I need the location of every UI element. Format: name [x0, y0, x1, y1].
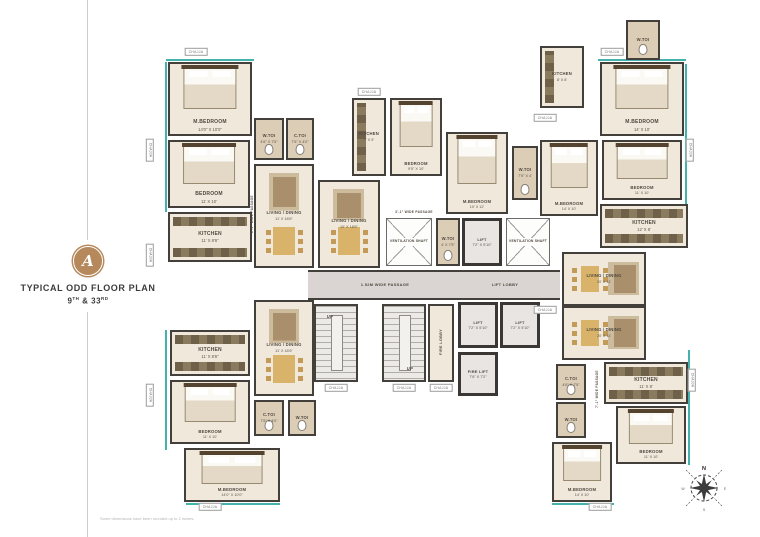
- chajja-label: CHAJJA: [393, 384, 416, 392]
- room-living-dining: LIVING / DINING11' X 18'6": [254, 164, 314, 268]
- room-bedroom: BEDROOM11' X 10': [170, 380, 250, 444]
- wc-furniture-icon: [521, 184, 530, 195]
- chajja-label: CHAJJA: [534, 306, 557, 314]
- room-m-bedroom: M.BEDROOM14'0" X 10'0": [184, 448, 280, 502]
- room-w-toi: W.TOI4'6" X 7'5": [254, 118, 284, 160]
- bed-furniture-icon: [183, 146, 235, 184]
- compass-south-label: S: [703, 508, 706, 512]
- room-ventilation-shaft: VENTILATION SHAFT: [386, 218, 432, 266]
- bed-furniture-icon: [457, 138, 496, 184]
- balcony-edge-line: [165, 330, 167, 450]
- chajja-label: CHAJJA: [146, 384, 154, 407]
- chajja-label: CHAJJA: [688, 369, 696, 392]
- balcony-edge-line: [165, 62, 167, 212]
- room-kitchen: KITCHEN8' X 8': [540, 46, 584, 108]
- floor-plan-drawing: M.BEDROOM14'0" X 10'0"BEDROOM11' X 10'W.…: [0, 0, 760, 537]
- compass-west-label: W: [681, 487, 685, 491]
- chajja-label: CHAJJA: [589, 503, 612, 511]
- plan-label-1-52m-wide-passage: 1.52M WIDE PASSAGE: [340, 282, 430, 287]
- bed-furniture-icon: [617, 146, 668, 179]
- plan-label-fire-lobby: FIRE LOBBY: [439, 297, 443, 387]
- chajja-label: CHAJJA: [185, 48, 208, 56]
- chajja-label: CHAJJA: [146, 139, 154, 162]
- room-living-dining: LIVING / DINING20' X 11': [562, 306, 646, 360]
- bed-furniture-icon: [551, 146, 588, 188]
- room-c-toi: C.TOI7'5" X 4'0": [286, 118, 314, 160]
- bed-furniture-icon: [185, 386, 236, 422]
- room-w-toi: W.TOI: [626, 20, 660, 60]
- chajja-label: CHAJJA: [534, 114, 557, 122]
- chajja-label: CHAJJA: [146, 244, 154, 267]
- chajja-label: CHAJJA: [199, 503, 222, 511]
- plan-label-7-1-wide-passage: 7'-1" WIDE PASSAGE: [595, 344, 599, 434]
- room-m-bedroom: M.BEDROOM14'0" X 10'0": [168, 62, 252, 136]
- wc-furniture-icon: [567, 422, 576, 433]
- balcony-edge-line: [166, 59, 254, 61]
- room-bedroom: BEDROOM11' X 10': [602, 140, 682, 200]
- room-m-bedroom: M.BEDROOM14' X 10': [552, 442, 612, 502]
- room-w-toi: W.TOI4' X 7'5": [436, 218, 460, 266]
- chajja-label: CHAJJA: [686, 139, 694, 162]
- room-living-dining: LIVING / DINING20' X 11': [562, 252, 646, 306]
- plan-label-2-1-wide-passage: 2'-1" WIDE PASSAGE: [250, 169, 254, 259]
- wc-furniture-icon: [265, 144, 274, 155]
- compass-north-label: N: [702, 466, 706, 472]
- disclaimer-text: Some dimensions have been rounded up to …: [100, 516, 220, 521]
- plan-label-up: UP: [285, 314, 375, 319]
- room-kitchen: KITCHEN11' X 8'6": [168, 212, 252, 262]
- bed-furniture-icon: [629, 412, 673, 444]
- bed-furniture-icon: [615, 68, 668, 109]
- room-bedroom: BEDROOM9'5" X 10': [390, 98, 442, 176]
- room-bedroom: BEDROOM11' X 10': [616, 406, 686, 464]
- room-lift: LIFT7'2" X 5'10": [458, 302, 498, 348]
- room-m-bedroom: M.BEDROOM14' X 10': [600, 62, 684, 136]
- chajja-label: CHAJJA: [358, 88, 381, 96]
- room-kitchen: KITCHEN11' X 8': [604, 362, 688, 404]
- balcony-edge-line: [688, 350, 690, 465]
- bed-furniture-icon: [400, 104, 433, 147]
- plan-label-3-1-wide-passage: 3'-1" WIDE PASSAGE: [369, 210, 459, 214]
- room-kitchen: KITCHEN11' X 8'6": [170, 330, 250, 376]
- room-fire-lift: FIRE LIFT7'6" X 7'2": [458, 352, 498, 396]
- room-bedroom: BEDROOM11' X 10': [168, 140, 250, 208]
- room-m-bedroom: M.BEDROOM14' X 10': [540, 140, 598, 216]
- room-w-toi: W.TOI: [556, 402, 586, 438]
- chajja-label: CHAJJA: [325, 384, 348, 392]
- balcony-edge-line: [685, 64, 687, 204]
- wc-furniture-icon: [298, 420, 307, 431]
- room-living-dining: LIVING / DINING10' X 18'6": [318, 180, 380, 268]
- room-w-toi: W.TOI7'5" X 4': [512, 146, 538, 200]
- room-kitchen: KITCHEN12' X 8': [600, 204, 688, 248]
- room-kitchen: KITCHEN7' X 9': [352, 98, 386, 176]
- room-c-toi: C.TOI4'6" X 7'5": [556, 364, 586, 400]
- room-ventilation-shaft: VENTILATION SHAFT: [506, 218, 550, 266]
- bed-furniture-icon: [563, 448, 601, 481]
- bed-furniture-icon: [202, 454, 263, 484]
- room-w-toi: W.TOI: [288, 400, 316, 436]
- room-lift: LIFT7'2" X 5'10": [462, 218, 502, 266]
- room-m-bedroom: M.BEDROOM10' X 12': [446, 132, 508, 214]
- plan-label-lift-lobby: LIFT LOBBY: [460, 282, 550, 287]
- room-c-toi: C.TOI7'5" X 4'0": [254, 400, 284, 436]
- chajja-label: CHAJJA: [601, 48, 624, 56]
- bed-furniture-icon: [183, 68, 236, 109]
- compass-east-label: E: [724, 487, 727, 491]
- wc-furniture-icon: [639, 44, 648, 55]
- wc-furniture-icon: [444, 250, 453, 261]
- compass-icon: N E S W: [678, 462, 730, 514]
- floor-plan-page: A TYPICAL ODD FLOOR PLAN 9TH & 33RD M.BE…: [0, 0, 760, 537]
- wc-furniture-icon: [296, 144, 305, 155]
